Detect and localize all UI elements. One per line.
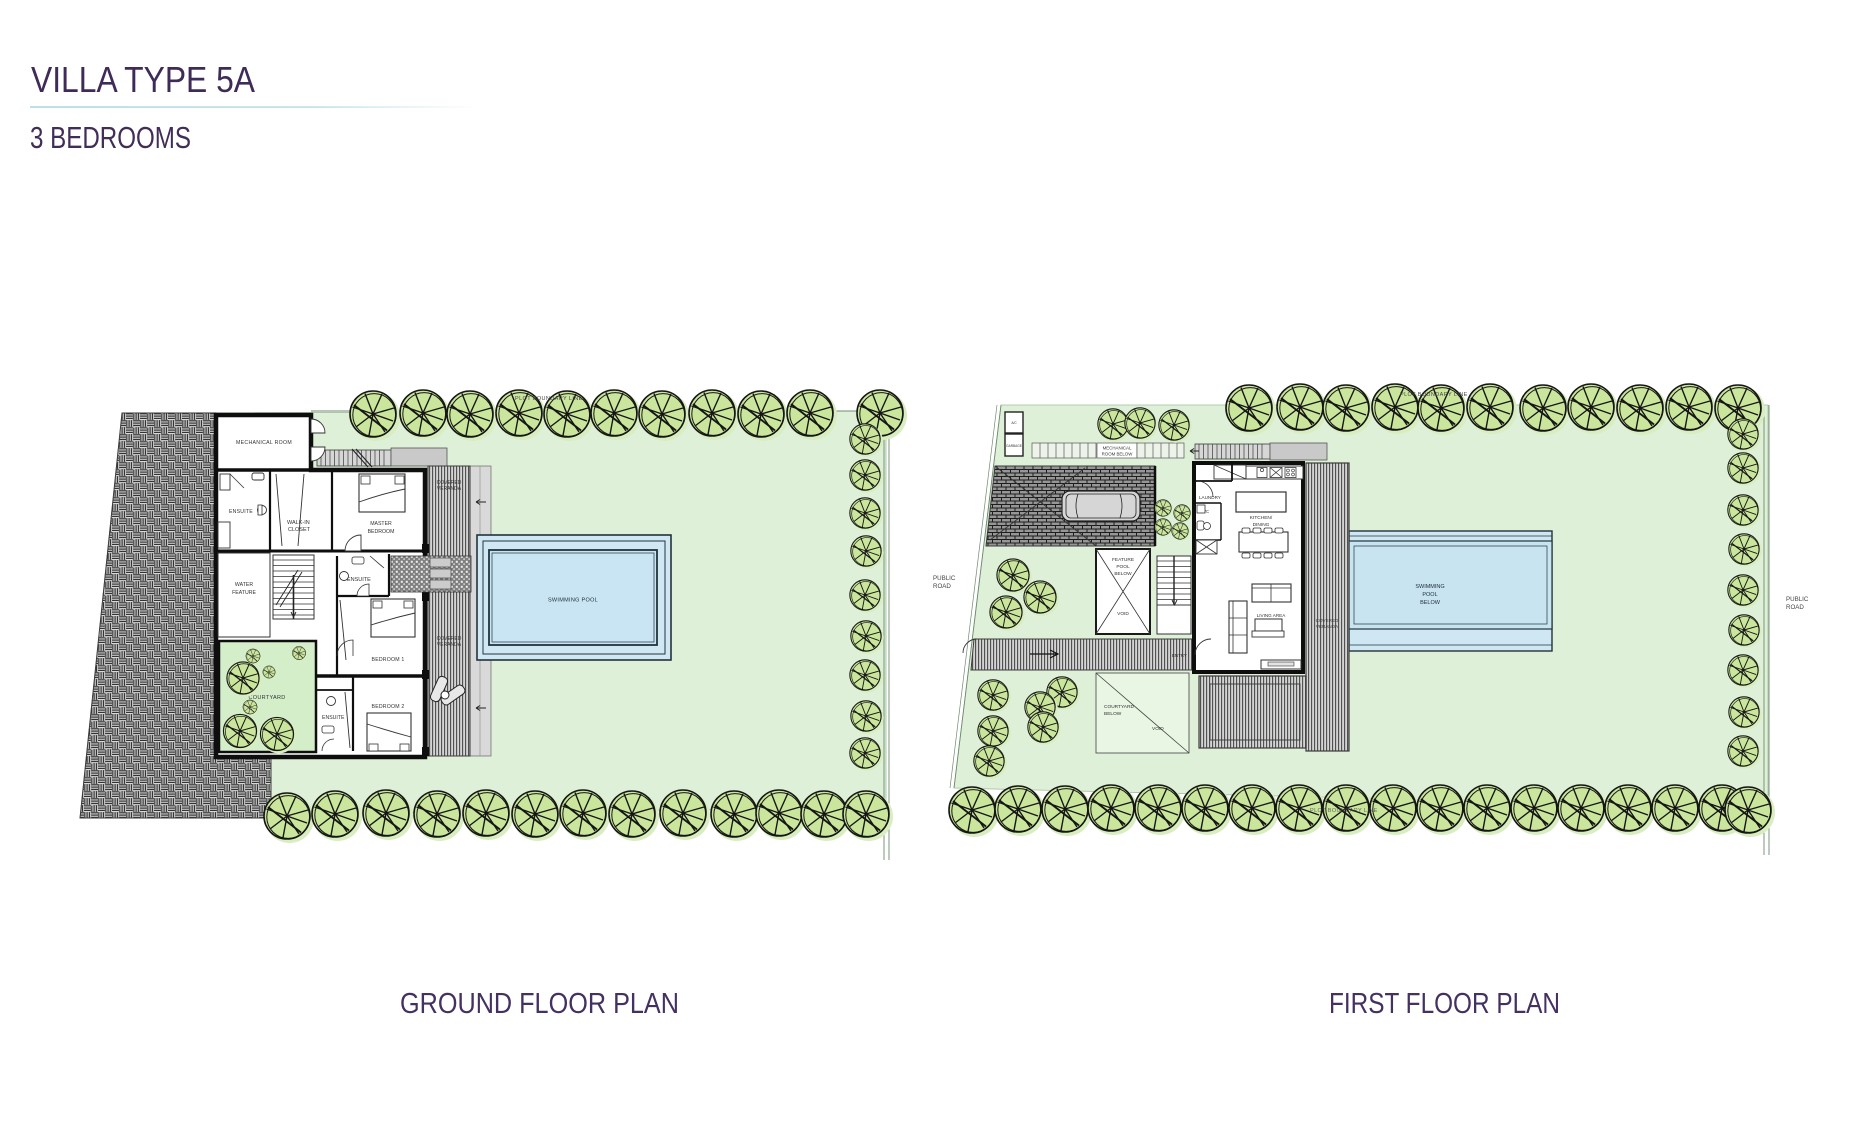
- svg-text:A/C: A/C: [1011, 421, 1017, 425]
- svg-text:ENSUITE: ENSUITE: [229, 509, 253, 515]
- svg-text:ROAD: ROAD: [933, 583, 951, 590]
- svg-text:VERANDA: VERANDA: [437, 642, 462, 648]
- svg-text:KITCHEN/: KITCHEN/: [1250, 515, 1273, 521]
- svg-text:BELOW: BELOW: [1104, 711, 1122, 717]
- svg-text:BEDROOM: BEDROOM: [368, 529, 395, 535]
- svg-text:PLOT BOUNDARY LINE: PLOT BOUNDARY LINE: [515, 396, 583, 402]
- svg-text:3 BEDROOMS: 3 BEDROOMS: [30, 120, 191, 155]
- svg-text:PUBLIC: PUBLIC: [933, 575, 956, 582]
- svg-text:VOID: VOID: [1117, 611, 1129, 617]
- svg-text:LIVING AREA: LIVING AREA: [1257, 613, 1287, 618]
- svg-text:ENTRY: ENTRY: [1172, 653, 1187, 658]
- svg-text:SWIMMING: SWIMMING: [1415, 584, 1444, 590]
- svg-text:COVERED: COVERED: [1316, 618, 1339, 623]
- svg-text:GARBAGE: GARBAGE: [1006, 444, 1022, 448]
- svg-text:GROUND FLOOR PLAN: GROUND FLOOR PLAN: [400, 988, 679, 1020]
- svg-text:COURTYARD: COURTYARD: [1104, 704, 1134, 710]
- svg-text:WATER: WATER: [235, 582, 253, 588]
- svg-text:PLOT BOUNDARY LINE: PLOT BOUNDARY LINE: [1400, 392, 1468, 398]
- svg-text:SWIMMING POOL: SWIMMING POOL: [548, 598, 598, 604]
- svg-text:ENSUITE: ENSUITE: [347, 577, 371, 583]
- svg-text:PLOT BOUNDARY LINE: PLOT BOUNDARY LINE: [1310, 808, 1378, 814]
- svg-text:FEATURE: FEATURE: [1112, 557, 1134, 563]
- svg-text:POOL: POOL: [1422, 592, 1437, 598]
- svg-text:BELOW: BELOW: [1420, 600, 1441, 606]
- svg-text:BEDROOM 2: BEDROOM 2: [372, 704, 405, 710]
- svg-text:VILLA TYPE 5A: VILLA TYPE 5A: [31, 59, 255, 100]
- svg-text:COURTYARD: COURTYARD: [248, 695, 285, 701]
- svg-text:BEDROOM 1: BEDROOM 1: [372, 657, 405, 663]
- svg-text:WALK-IN: WALK-IN: [287, 520, 310, 526]
- svg-text:VERANDA: VERANDA: [437, 486, 462, 492]
- svg-text:FIRST FLOOR PLAN: FIRST FLOOR PLAN: [1329, 988, 1560, 1020]
- svg-text:BELOW: BELOW: [1114, 571, 1132, 577]
- svg-text:PUBLIC: PUBLIC: [1786, 596, 1809, 603]
- svg-text:ROAD: ROAD: [1786, 604, 1804, 611]
- svg-text:FEATURE: FEATURE: [232, 590, 256, 596]
- svg-text:VOID: VOID: [1152, 726, 1164, 732]
- svg-text:MECHANICAL: MECHANICAL: [1103, 446, 1132, 451]
- svg-text:POOL: POOL: [1116, 564, 1130, 570]
- svg-text:VERANDA: VERANDA: [1316, 624, 1339, 629]
- svg-text:LAUNDRY: LAUNDRY: [1199, 495, 1221, 500]
- svg-text:MECHANICAL ROOM: MECHANICAL ROOM: [236, 440, 292, 446]
- svg-text:DINING: DINING: [1253, 522, 1270, 528]
- svg-text:ENSUITE: ENSUITE: [322, 715, 345, 721]
- svg-text:MASTER: MASTER: [370, 521, 392, 527]
- svg-text:ROOM BELOW: ROOM BELOW: [1102, 452, 1134, 457]
